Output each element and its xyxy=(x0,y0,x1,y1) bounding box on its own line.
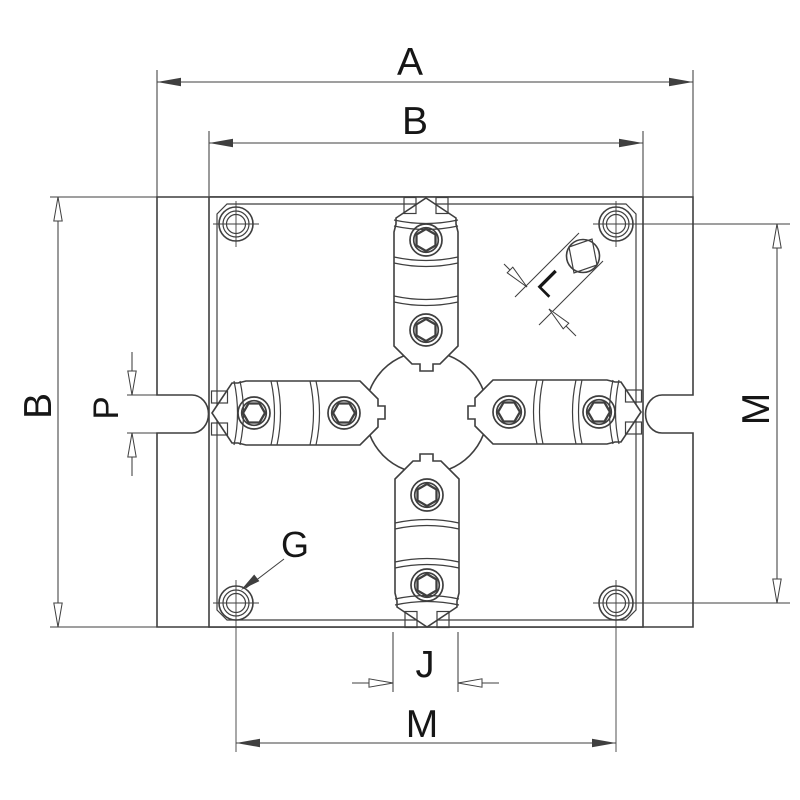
dim-m-right: M xyxy=(735,224,781,603)
diamond-pin xyxy=(567,239,600,273)
dim-m-right-label: M xyxy=(735,393,778,426)
dim-j: J xyxy=(352,632,499,692)
corner-hole-bottom-left xyxy=(213,580,259,752)
jaw-left xyxy=(212,381,386,445)
dim-b-top-label: B xyxy=(402,100,428,143)
dim-m-bottom: M xyxy=(236,703,616,747)
dim-b-left-label: B xyxy=(17,393,60,419)
dim-b-top: B xyxy=(209,100,643,196)
dim-m-bottom-label: M xyxy=(406,703,439,746)
jaw-bottom xyxy=(395,454,459,628)
jaw-top xyxy=(394,198,458,372)
jaw-right xyxy=(468,380,642,444)
dim-p-label: P xyxy=(87,396,126,419)
drawing-canvas: A B B P M M J xyxy=(0,0,800,800)
leader-g-label: G xyxy=(281,524,309,565)
dim-j-label: J xyxy=(416,644,435,686)
dim-p: P xyxy=(87,352,160,476)
dim-a-label: A xyxy=(397,41,423,84)
